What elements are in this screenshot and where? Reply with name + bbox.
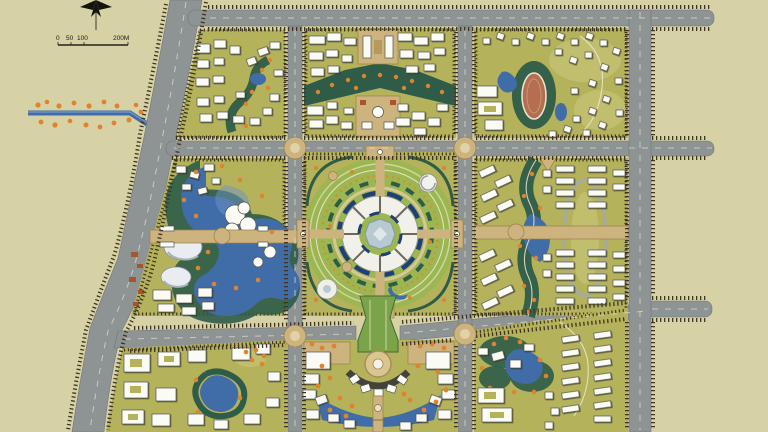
block-mid-right: [474, 158, 628, 316]
central-park-block: [297, 146, 463, 318]
block-top-right: [474, 28, 628, 138]
master-plan-map: 0 50 100 200M: [0, 0, 768, 432]
axis-pier: [373, 396, 383, 432]
block-f-axis-node: [508, 224, 524, 240]
block-c-pond-east: [555, 103, 567, 121]
scale-label-0: 0: [56, 35, 60, 42]
scale-label-50: 50: [66, 35, 74, 42]
block-b-axis-pavilion: [358, 30, 398, 64]
sports-track: [522, 73, 546, 119]
block-b-gate-building: [356, 96, 400, 136]
scale-label-100: 100: [77, 35, 88, 42]
fountain: [373, 359, 383, 369]
block-bottom-left: [106, 340, 288, 432]
scale-label-200m: 200M: [113, 35, 129, 42]
axis-green-mall: [358, 296, 398, 352]
block-top-middle: [304, 28, 456, 138]
block-f-axis-road: [474, 226, 628, 239]
block-a-pond: [250, 73, 266, 85]
